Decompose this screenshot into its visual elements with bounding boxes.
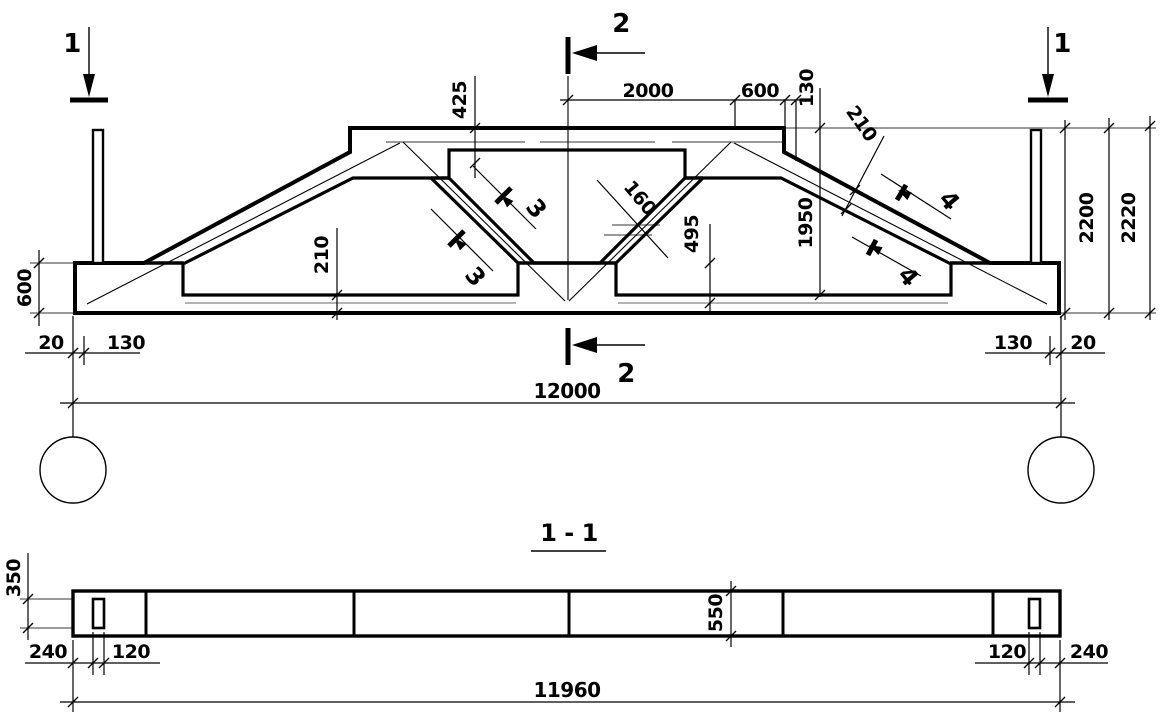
plan-section-view: 1 - 1 350 240 120 550 120 240 11960 — [3, 519, 1108, 712]
dim-550-label: 550 — [705, 594, 727, 632]
section-marker-1-right: 1 — [1028, 27, 1071, 100]
dim-2220-label: 2220 — [1118, 192, 1140, 243]
section-4-label: 4 — [892, 261, 924, 291]
truss-outline — [75, 128, 1059, 313]
arrow-up-left-icon — [501, 195, 513, 207]
end-hole-left — [93, 599, 104, 628]
gray-reference-lines — [30, 128, 1156, 313]
drawing-page: 1 1 2 2 3 — [0, 0, 1161, 718]
dim-1950-label: 1950 — [795, 197, 817, 248]
dim-11960-label: 11960 — [533, 678, 600, 702]
dim-20-left-label: 20 — [38, 332, 64, 354]
arrow-left-icon — [572, 45, 597, 61]
beam-outline — [73, 591, 1060, 636]
arrow-up-left-icon — [454, 238, 466, 250]
grid-bubble-right — [1028, 437, 1094, 503]
dim-600-left-label: 600 — [14, 269, 36, 307]
grid-bubble-left — [40, 437, 106, 503]
section-marker-3-upper: 3 — [496, 188, 552, 224]
dim-495-label: 495 — [681, 215, 703, 253]
support-post-right — [1031, 130, 1041, 263]
section-marker-4-upper: 4 — [897, 185, 965, 216]
arrow-down-icon — [83, 74, 95, 97]
section-marker-1-left: 1 — [63, 27, 108, 100]
dim-120-left-label: 120 — [112, 641, 150, 663]
dim-12000-label: 12000 — [533, 379, 600, 403]
dim-240-left-label: 240 — [29, 641, 67, 663]
dim-240-right-label: 240 — [1070, 641, 1108, 663]
dim-210-slope-label: 210 — [841, 102, 881, 146]
dim-20-right-label: 20 — [1070, 332, 1096, 354]
dim-600-top-label: 600 — [741, 80, 779, 102]
section-3-label: 3 — [520, 193, 552, 223]
dim-425-label: 425 — [449, 81, 471, 119]
section-2-label: 2 — [612, 9, 630, 39]
end-hole-right — [1029, 599, 1040, 628]
dim-130-top-label: 130 — [796, 69, 818, 107]
truss-technical-drawing: 1 1 2 2 3 — [0, 0, 1161, 718]
dim-130-right-label: 130 — [994, 332, 1032, 354]
dim-2200-label: 2200 — [1076, 192, 1098, 243]
arrow-down-icon — [1042, 74, 1054, 97]
elevation-view: 1 1 2 2 3 — [14, 9, 1156, 503]
section-1-label: 1 — [1053, 29, 1071, 59]
section-3-label: 3 — [459, 261, 491, 291]
dim-210-bottom-label: 210 — [311, 236, 333, 274]
section-1-label: 1 — [63, 29, 81, 59]
arrow-left-icon — [572, 337, 597, 353]
dim-130-left-label: 130 — [107, 332, 145, 354]
section-marker-2-top: 2 — [568, 9, 645, 74]
section-2-label: 2 — [617, 359, 635, 389]
dim-350-label: 350 — [3, 559, 25, 597]
dim-2000-label: 2000 — [623, 80, 674, 102]
section-view-title: 1 - 1 — [540, 519, 598, 547]
support-post-left — [93, 130, 103, 263]
dim-120-right-label: 120 — [988, 641, 1026, 663]
section-marker-3-lower: 3 — [449, 231, 491, 292]
dim-160-label: 160 — [619, 176, 661, 220]
